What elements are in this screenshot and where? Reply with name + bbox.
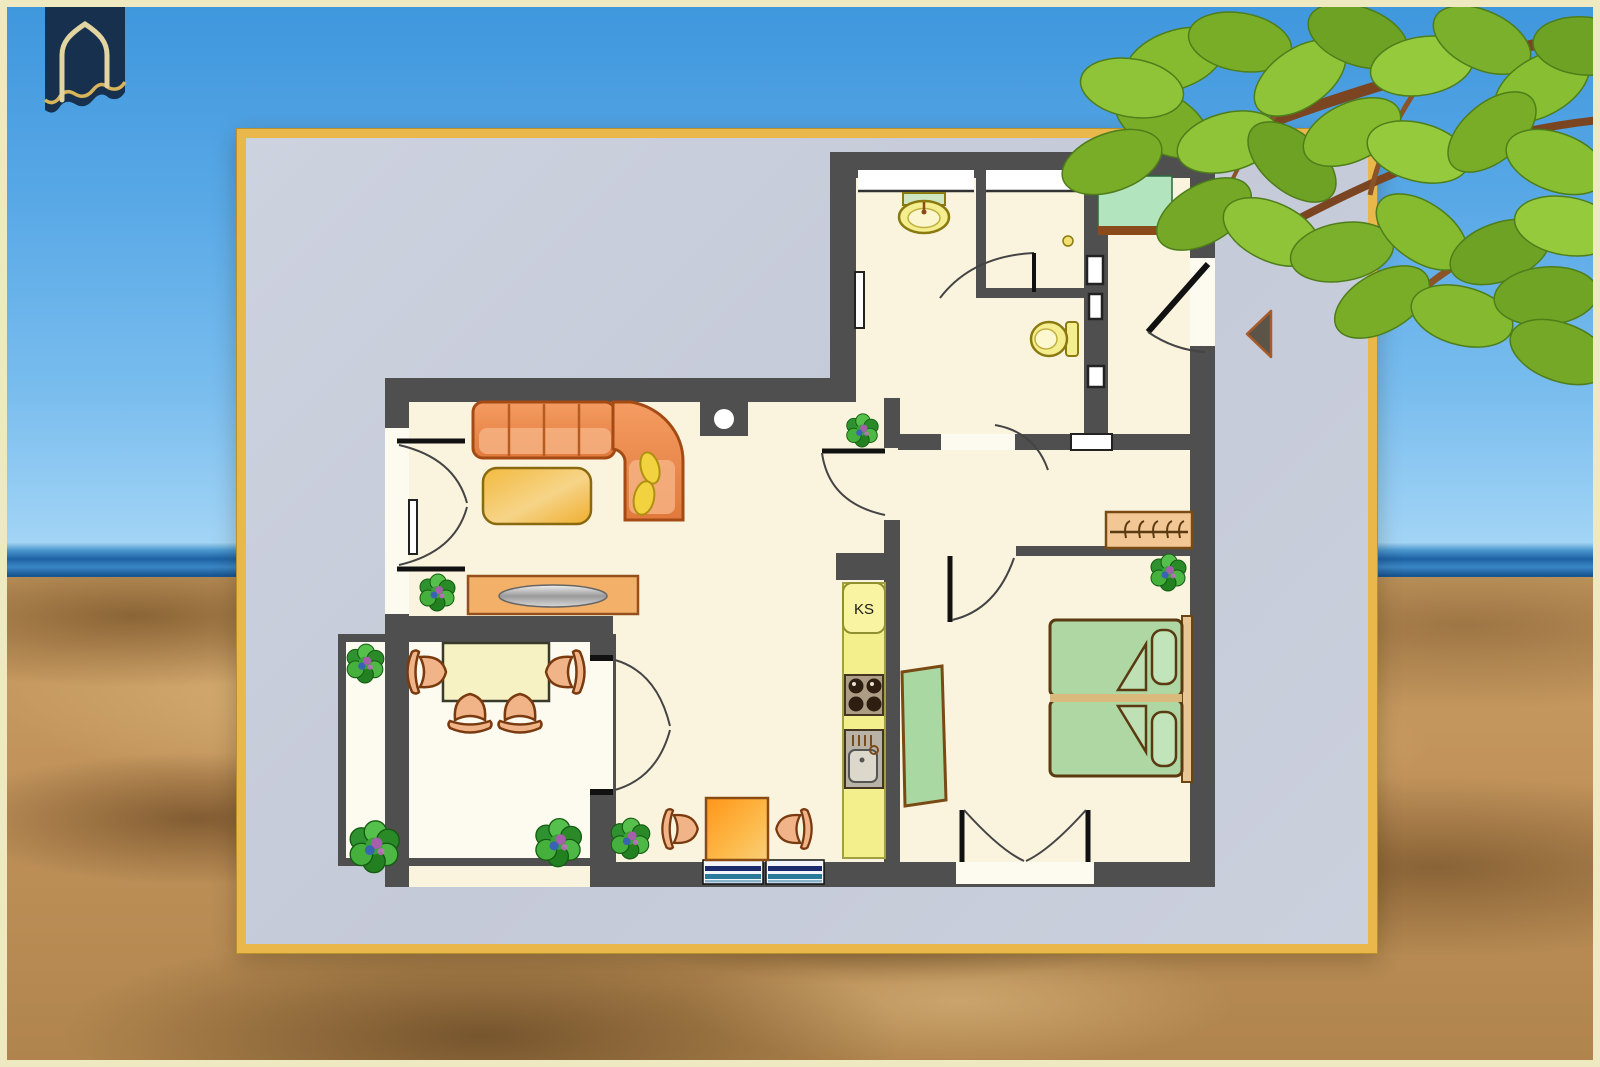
door-knob	[1063, 236, 1073, 246]
nook-table	[706, 798, 768, 860]
chimney-flue	[714, 409, 734, 429]
floor-plan-graphics: KS	[7, 7, 1593, 1060]
toilet	[1031, 322, 1078, 356]
double-bed	[1050, 616, 1192, 782]
fridge-label: KS	[854, 601, 874, 618]
tv	[499, 585, 607, 607]
beach-photo-background: KS	[7, 7, 1593, 1060]
coffee-table	[483, 468, 591, 524]
kitchen-units: KS	[843, 583, 885, 858]
bench	[902, 666, 946, 806]
kitchen-nook-windows	[703, 860, 824, 884]
hall-window	[1071, 434, 1112, 450]
dining-table	[443, 643, 549, 701]
bath-window	[858, 170, 974, 190]
entrance-arrow-icon	[1247, 311, 1271, 357]
tv-sideboard	[468, 576, 638, 614]
kitchen-sink	[845, 730, 883, 788]
bathroom-sink	[899, 193, 949, 233]
pillow	[1152, 712, 1176, 766]
stove	[845, 675, 883, 715]
bath-wall-window	[855, 272, 864, 328]
logo[interactable]	[45, 7, 125, 113]
living-wall-window	[409, 500, 417, 554]
pillow	[1152, 630, 1176, 684]
flyer-scene: KS	[0, 0, 1600, 1067]
coat-rack	[1106, 512, 1192, 548]
